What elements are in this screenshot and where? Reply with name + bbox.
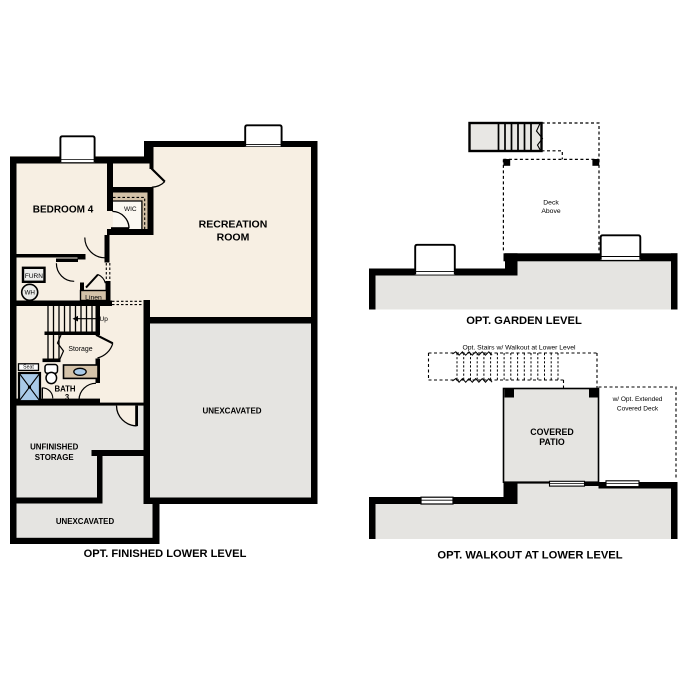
svg-text:FURN: FURN [25,273,43,280]
svg-text:Opt. Stairs w/ Walkout at Lowe: Opt. Stairs w/ Walkout at Lower Level [462,344,576,351]
svg-text:ROOM: ROOM [217,231,250,243]
svg-text:BEDROOM 4: BEDROOM 4 [33,205,94,216]
svg-text:OPT. WALKOUT AT LOWER LEVEL: OPT. WALKOUT AT LOWER LEVEL [437,549,622,561]
svg-text:Above: Above [541,208,560,215]
svg-text:UNEXCAVATED: UNEXCAVATED [56,517,115,526]
svg-text:3: 3 [65,393,70,402]
svg-text:UNFINISHED: UNFINISHED [30,442,79,451]
svg-text:UNEXCAVATED: UNEXCAVATED [202,407,261,416]
svg-text:Covered Deck: Covered Deck [617,406,659,413]
svg-text:WH: WH [24,290,35,297]
svg-text:Seat: Seat [23,365,34,371]
svg-text:w/ Opt. Extended: w/ Opt. Extended [612,396,663,403]
svg-text:COVERED: COVERED [530,427,574,437]
svg-text:Up: Up [100,316,109,323]
svg-text:Storage: Storage [68,346,92,353]
svg-text:Deck: Deck [543,199,559,206]
svg-text:Linen: Linen [85,295,102,302]
svg-text:STORAGE: STORAGE [35,453,74,462]
svg-text:OPT. FINISHED LOWER LEVEL: OPT. FINISHED LOWER LEVEL [84,548,247,560]
svg-text:RECREATION: RECREATION [199,219,268,231]
svg-text:OPT. GARDEN LEVEL: OPT. GARDEN LEVEL [466,315,582,327]
svg-text:PATIO: PATIO [539,437,565,447]
svg-text:WIC: WIC [124,206,137,213]
